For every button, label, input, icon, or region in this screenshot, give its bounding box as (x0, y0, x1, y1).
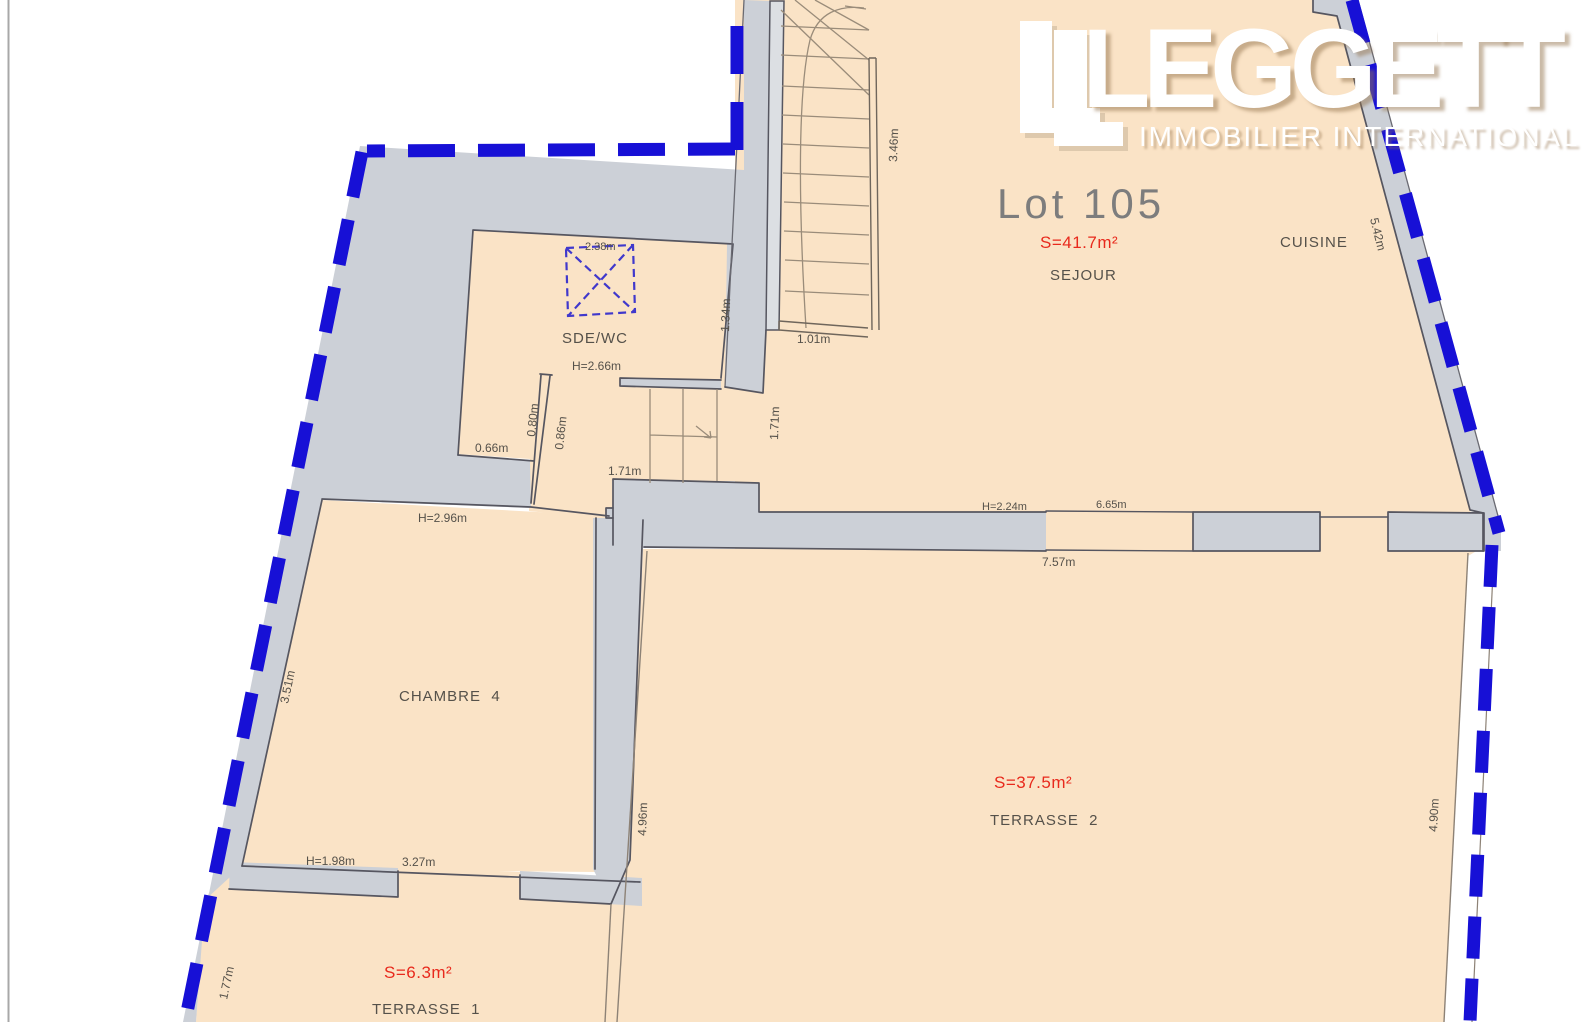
svg-text:H=2.66m: H=2.66m (572, 359, 621, 373)
svg-text:S=37.5m²: S=37.5m² (994, 773, 1072, 792)
svg-text:7.57m: 7.57m (1042, 555, 1075, 569)
svg-text:CHAMBRE 4: CHAMBRE 4 (399, 688, 501, 705)
svg-text:TERRASSE 1: TERRASSE 1 (372, 1001, 481, 1018)
svg-text:4.96m: 4.96m (635, 802, 650, 836)
svg-text:1.71m: 1.71m (608, 464, 641, 478)
svg-text:H=2.24m: H=2.24m (982, 501, 1027, 513)
svg-text:S=41.7m²: S=41.7m² (1040, 233, 1118, 252)
svg-text:LEGGETT: LEGGETT (1082, 6, 1565, 131)
svg-text:H=2.96m: H=2.96m (418, 511, 467, 525)
svg-text:3.27m: 3.27m (402, 855, 435, 869)
svg-text:SEJOUR: SEJOUR (1050, 267, 1117, 284)
svg-text:1.34m: 1.34m (718, 298, 733, 332)
svg-text:TERRASSE 2: TERRASSE 2 (990, 812, 1099, 829)
svg-text:0.66m: 0.66m (475, 441, 508, 455)
svg-text:2.38m: 2.38m (585, 241, 616, 253)
svg-text:IMMOBILIER INTERNATIONAL: IMMOBILIER INTERNATIONAL (1139, 121, 1579, 152)
svg-text:CUISINE: CUISINE (1280, 234, 1348, 251)
svg-text:3.46m: 3.46m (886, 128, 901, 162)
svg-text:SDE/WC: SDE/WC (562, 330, 628, 347)
svg-text:6.65m: 6.65m (1096, 499, 1127, 511)
svg-text:S=6.3m²: S=6.3m² (384, 963, 452, 982)
svg-text:Lot 105: Lot 105 (997, 180, 1165, 227)
svg-text:1.71m: 1.71m (767, 406, 782, 440)
svg-text:1.01m: 1.01m (797, 332, 830, 346)
svg-text:H=1.98m: H=1.98m (306, 854, 355, 868)
svg-text:4.90m: 4.90m (1426, 798, 1442, 832)
